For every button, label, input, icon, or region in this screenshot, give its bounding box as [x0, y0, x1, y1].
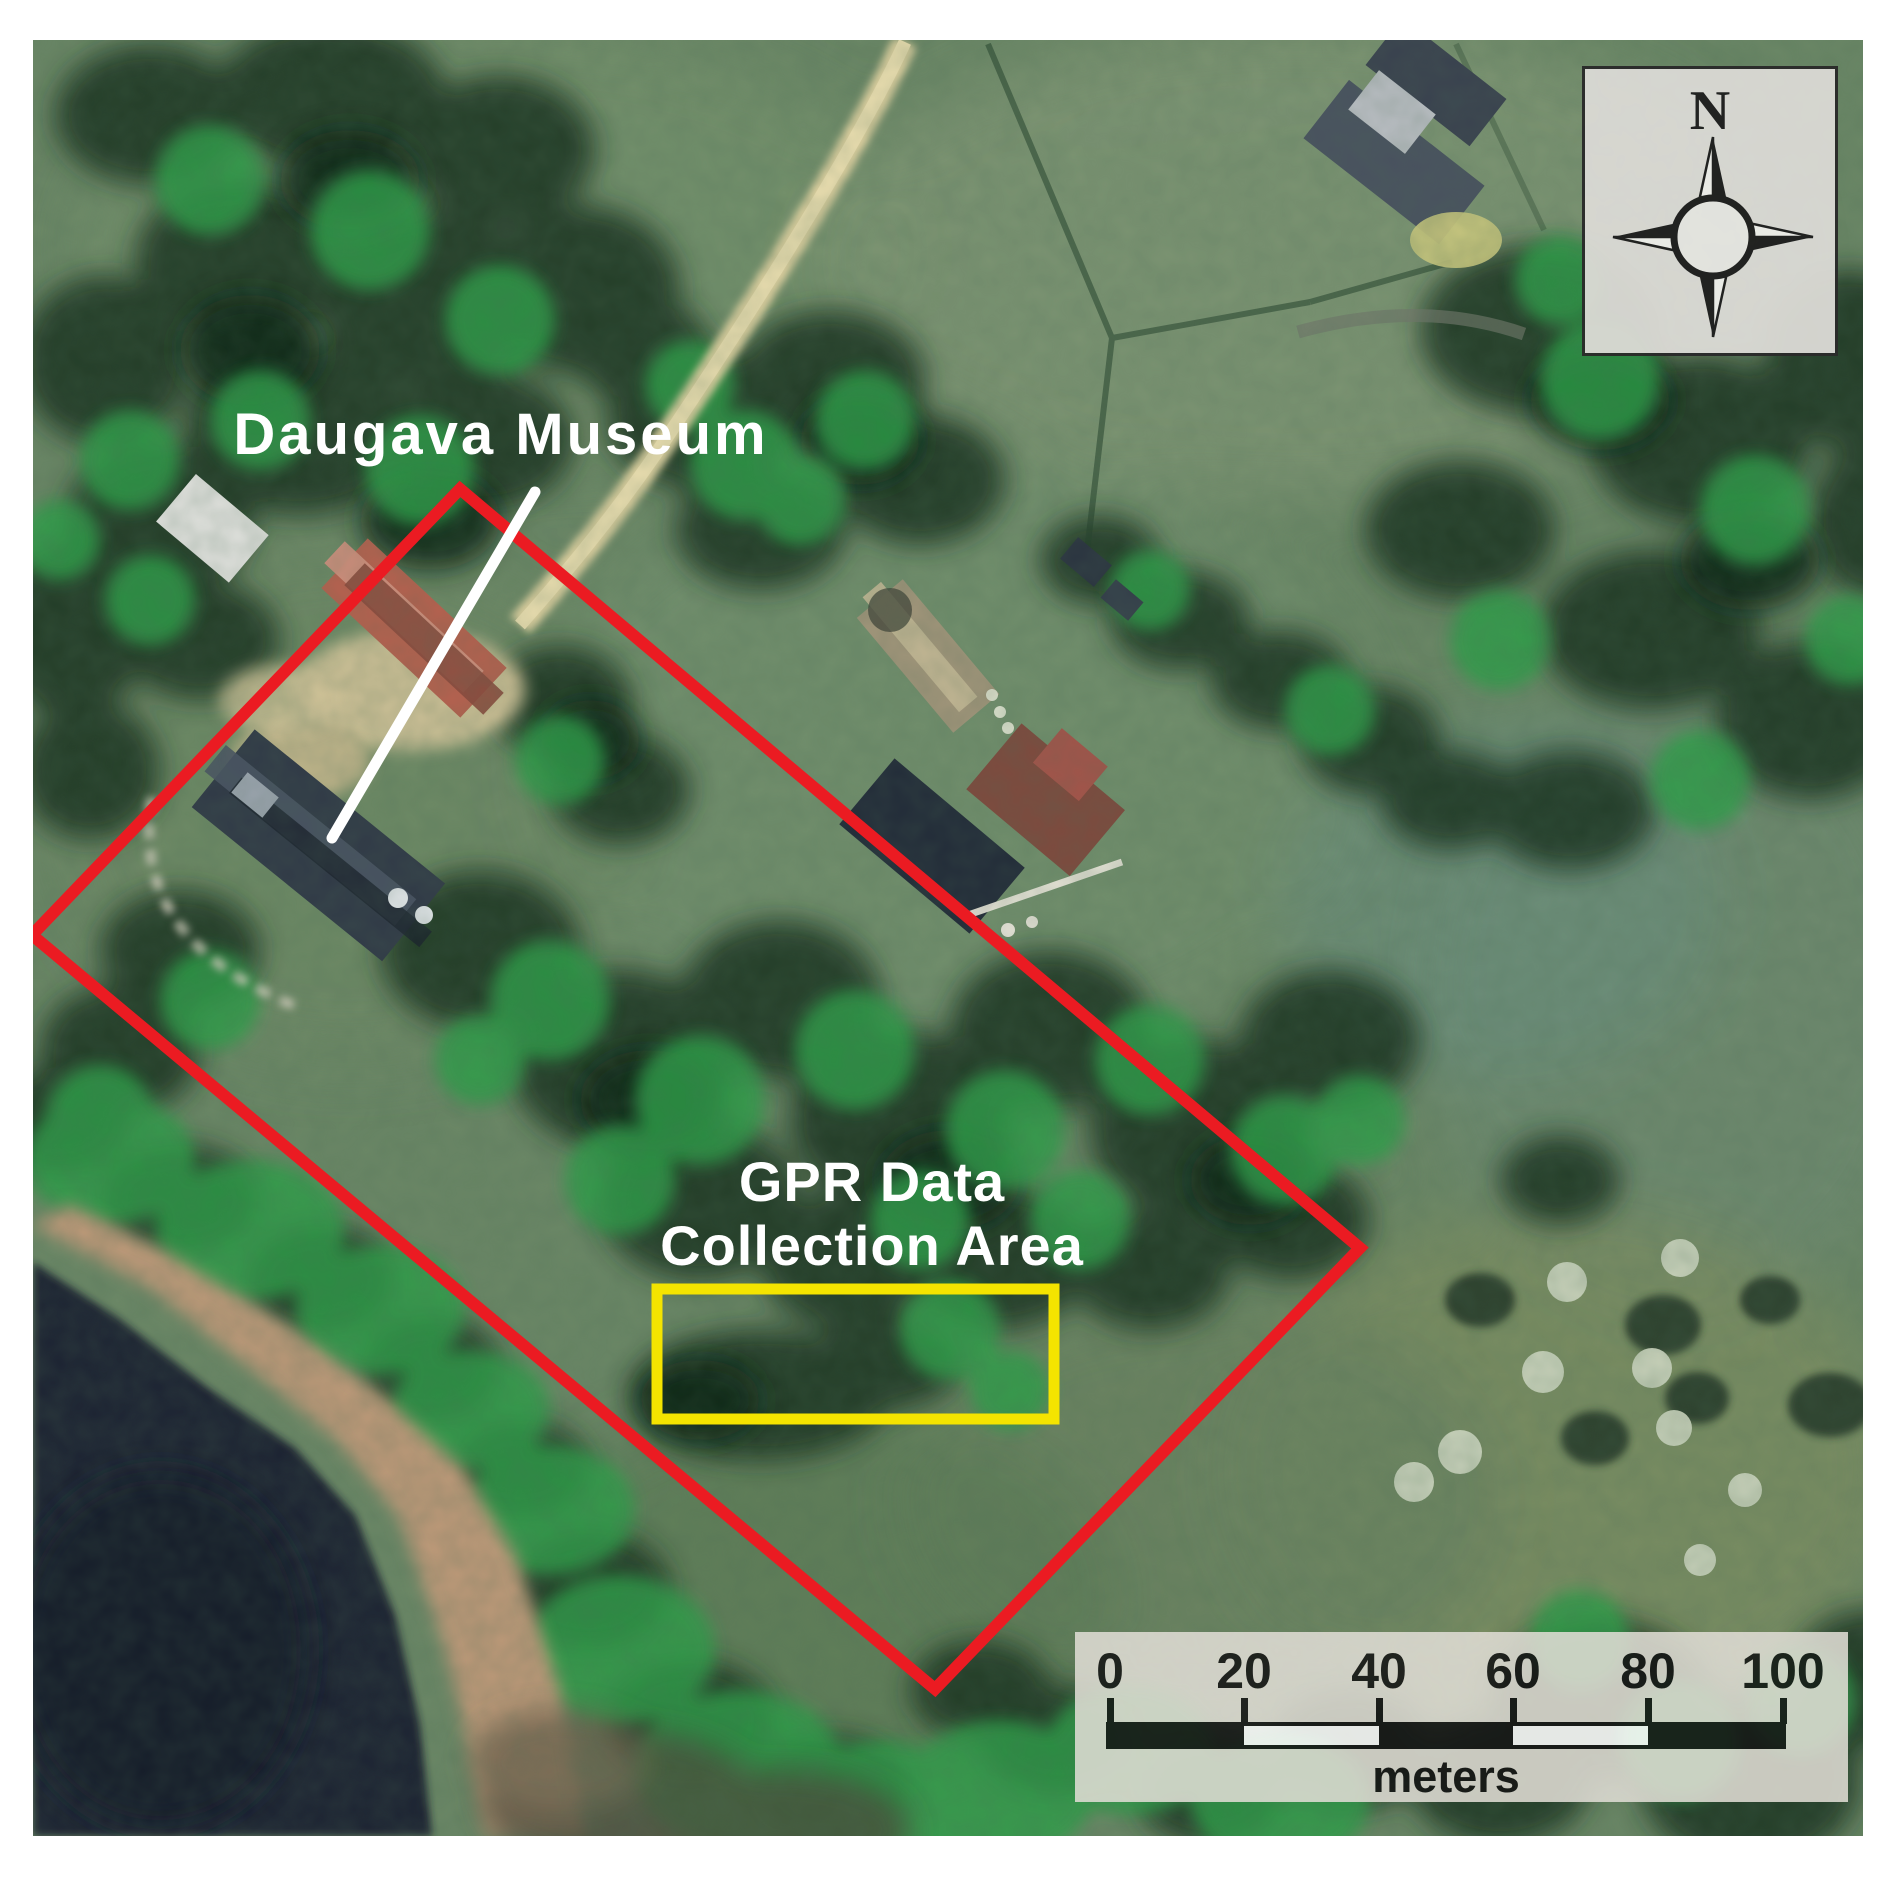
scale-segment [1379, 1726, 1513, 1745]
scale-tick [1107, 1698, 1114, 1724]
scale-tick-label: 0 [1055, 1642, 1165, 1700]
scale-bar-segments [1106, 1722, 1786, 1749]
scale-bar: 0 20 40 60 80 100 meters [1075, 1632, 1848, 1802]
museum-label: Daugava Museum [168, 403, 834, 468]
scale-unit-label: meters [1106, 1751, 1786, 1803]
scale-tick-label: 40 [1324, 1642, 1434, 1700]
scale-segment [1648, 1726, 1782, 1745]
scale-segment [1110, 1726, 1244, 1745]
scale-tick [1241, 1698, 1248, 1724]
scale-tick-label: 60 [1458, 1642, 1568, 1700]
scale-tick [1780, 1698, 1787, 1724]
scale-tick [1510, 1698, 1517, 1724]
scale-tick [1645, 1698, 1652, 1724]
gpr-area-label-line1: GPR Data [572, 1150, 1172, 1214]
figure-page: Daugava Museum GPR Data Collection Area … [0, 0, 1894, 1877]
scale-tick-label: 80 [1593, 1642, 1703, 1700]
scale-tick [1376, 1698, 1383, 1724]
gpr-area-label-line2: Collection Area [572, 1214, 1172, 1278]
gpr-area-label: GPR Data Collection Area [572, 1150, 1172, 1278]
compass-rose: N [1582, 66, 1838, 356]
scale-tick-label: 100 [1728, 1642, 1838, 1700]
scale-tick-label: 20 [1189, 1642, 1299, 1700]
compass-star-icon [1595, 127, 1831, 347]
